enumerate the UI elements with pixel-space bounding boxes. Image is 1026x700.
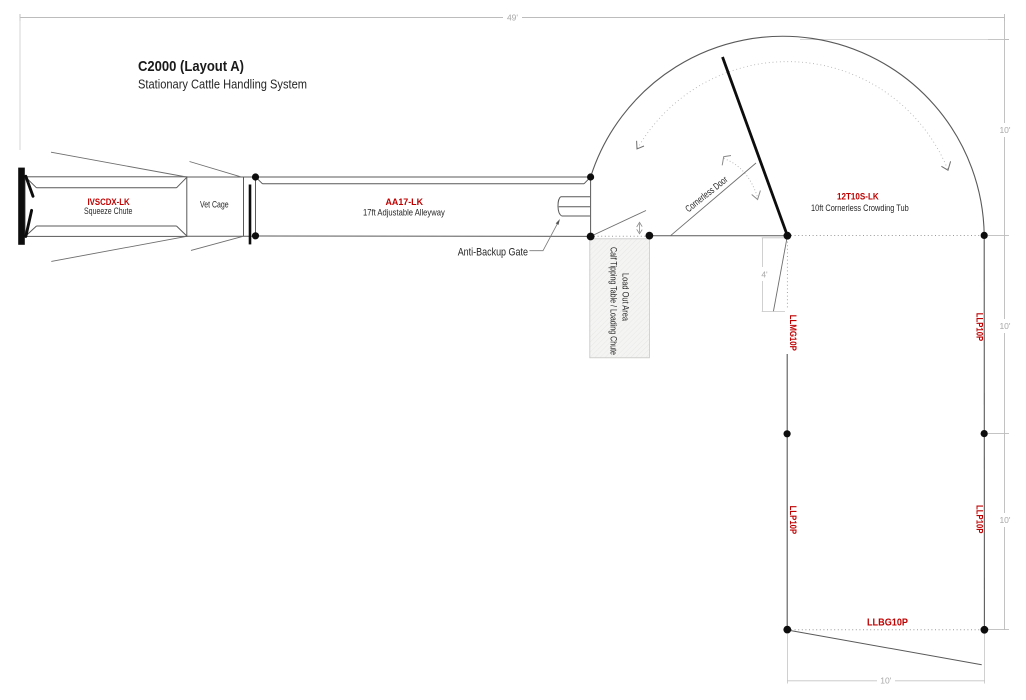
svg-text:10': 10' [880, 676, 891, 686]
svg-text:Squeeze Chute: Squeeze Chute [84, 205, 132, 216]
svg-text:Load Out Area: Load Out Area [620, 273, 631, 322]
svg-text:10': 10' [999, 515, 1010, 525]
svg-text:Vet Cage: Vet Cage [200, 198, 229, 209]
svg-text:Calf Tipping Table / Loading C: Calf Tipping Table / Loading Chute [607, 247, 618, 355]
svg-text:Cornerless Door: Cornerless Door [683, 174, 730, 215]
svg-text:10': 10' [999, 125, 1010, 135]
svg-text:10': 10' [999, 321, 1010, 331]
svg-text:LLMG10P: LLMG10P [788, 315, 798, 351]
svg-text:LLBG10P: LLBG10P [867, 617, 908, 628]
svg-text:17ft Adjustable Alleyway: 17ft Adjustable Alleyway [363, 208, 445, 219]
svg-text:LLP10P: LLP10P [974, 313, 984, 342]
svg-text:AA17-LK: AA17-LK [386, 197, 424, 208]
svg-text:10ft Cornerless Crowding Tub: 10ft Cornerless Crowding Tub [811, 203, 909, 214]
svg-text:LLP10P: LLP10P [788, 506, 798, 535]
svg-text:Stationary Cattle Handling Sys: Stationary Cattle Handling System [138, 77, 307, 92]
svg-text:4': 4' [761, 270, 768, 280]
svg-text:Anti-Backup Gate: Anti-Backup Gate [458, 246, 528, 258]
svg-text:49': 49' [507, 13, 518, 23]
svg-text:C2000 (Layout A): C2000 (Layout A) [138, 59, 244, 75]
svg-text:LLP10P: LLP10P [974, 505, 984, 534]
svg-text:12T10S-LK: 12T10S-LK [837, 191, 879, 202]
